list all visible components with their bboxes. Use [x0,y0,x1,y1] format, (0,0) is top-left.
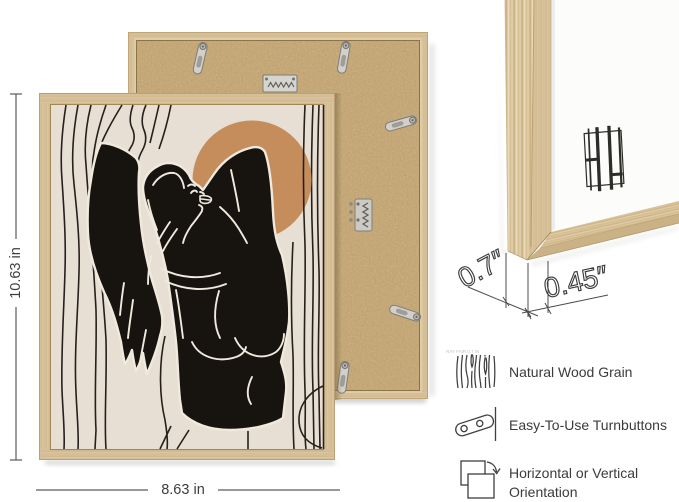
svg-text:8.63 in: 8.63 in [161,482,205,498]
svg-text:Horizontal or Vertical: Horizontal or Vertical [509,465,638,481]
svg-text:Orientation: Orientation [509,484,577,500]
svg-text:Natural Wood Grain: Natural Wood Grain [509,364,632,380]
svg-text:RAY FAIR 0.7 IN: RAY FAIR 0.7 IN [446,349,479,354]
svg-text:10.63 in: 10.63 in [8,247,24,299]
svg-text:Easy-To-Use Turnbuttons: Easy-To-Use Turnbuttons [509,417,667,433]
